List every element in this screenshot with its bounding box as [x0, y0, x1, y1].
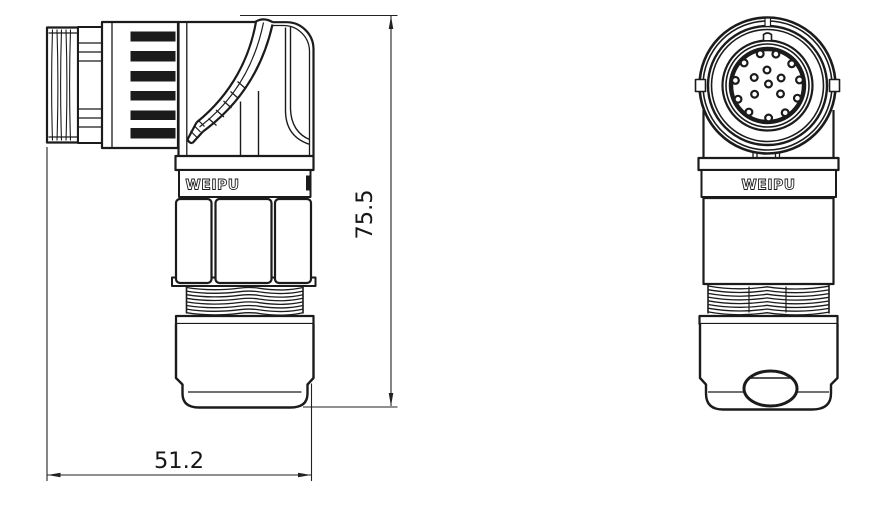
pin-hole	[764, 67, 771, 74]
dimension-height-label: 75.5	[352, 189, 378, 239]
pin-hole	[757, 50, 764, 57]
brand-logo-side: WEIPU	[185, 178, 239, 194]
side-view-right-angle-plug: WEIPU	[47, 19, 316, 407]
pin-hole	[746, 109, 753, 116]
grip-ribs	[102, 22, 178, 148]
pin-hole	[751, 91, 758, 98]
thread-section-side	[187, 287, 304, 316]
pin-hole	[773, 51, 780, 58]
logo-band-side: WEIPU	[176, 156, 314, 197]
elbow-housing	[178, 19, 314, 156]
technical-drawing-page: WEIPU	[0, 0, 872, 508]
coupling-notch-left	[696, 80, 706, 92]
pin-hole	[751, 74, 758, 81]
pin-hole	[778, 75, 785, 82]
locking-ring	[78, 27, 102, 143]
latch-strap	[188, 22, 273, 143]
hex-body-side	[172, 199, 316, 286]
cable-gland-side	[176, 316, 314, 408]
front-view-plug: WEIPU	[696, 18, 840, 410]
pin-hole	[735, 96, 742, 103]
coupling-gap-top	[765, 18, 771, 27]
pin-hole	[777, 91, 784, 98]
pin-hole	[741, 60, 748, 67]
brand-logo-front: WEIPU	[741, 178, 795, 194]
front-body	[704, 198, 834, 284]
thread-section-front	[708, 285, 829, 315]
polarizing-key	[764, 33, 772, 40]
pin-hole	[782, 109, 789, 116]
logo-band-front: WEIPU	[699, 158, 839, 197]
pin-hole	[732, 77, 739, 84]
pin-hole	[794, 95, 801, 102]
pin-hole	[788, 60, 795, 67]
logo-partial-glyph	[306, 176, 311, 191]
connector-face	[696, 18, 840, 154]
coupling-notch-right	[830, 80, 840, 92]
cable-entry-boot	[744, 371, 797, 406]
pin-hole	[796, 77, 803, 84]
pin-hole	[765, 115, 772, 122]
connector-drawing-canvas: WEIPU	[0, 0, 872, 508]
coupling-ring	[47, 28, 78, 143]
dimension-width-label: 51.2	[154, 448, 204, 474]
pin-hole	[765, 81, 772, 88]
cable-gland-front	[700, 316, 838, 410]
